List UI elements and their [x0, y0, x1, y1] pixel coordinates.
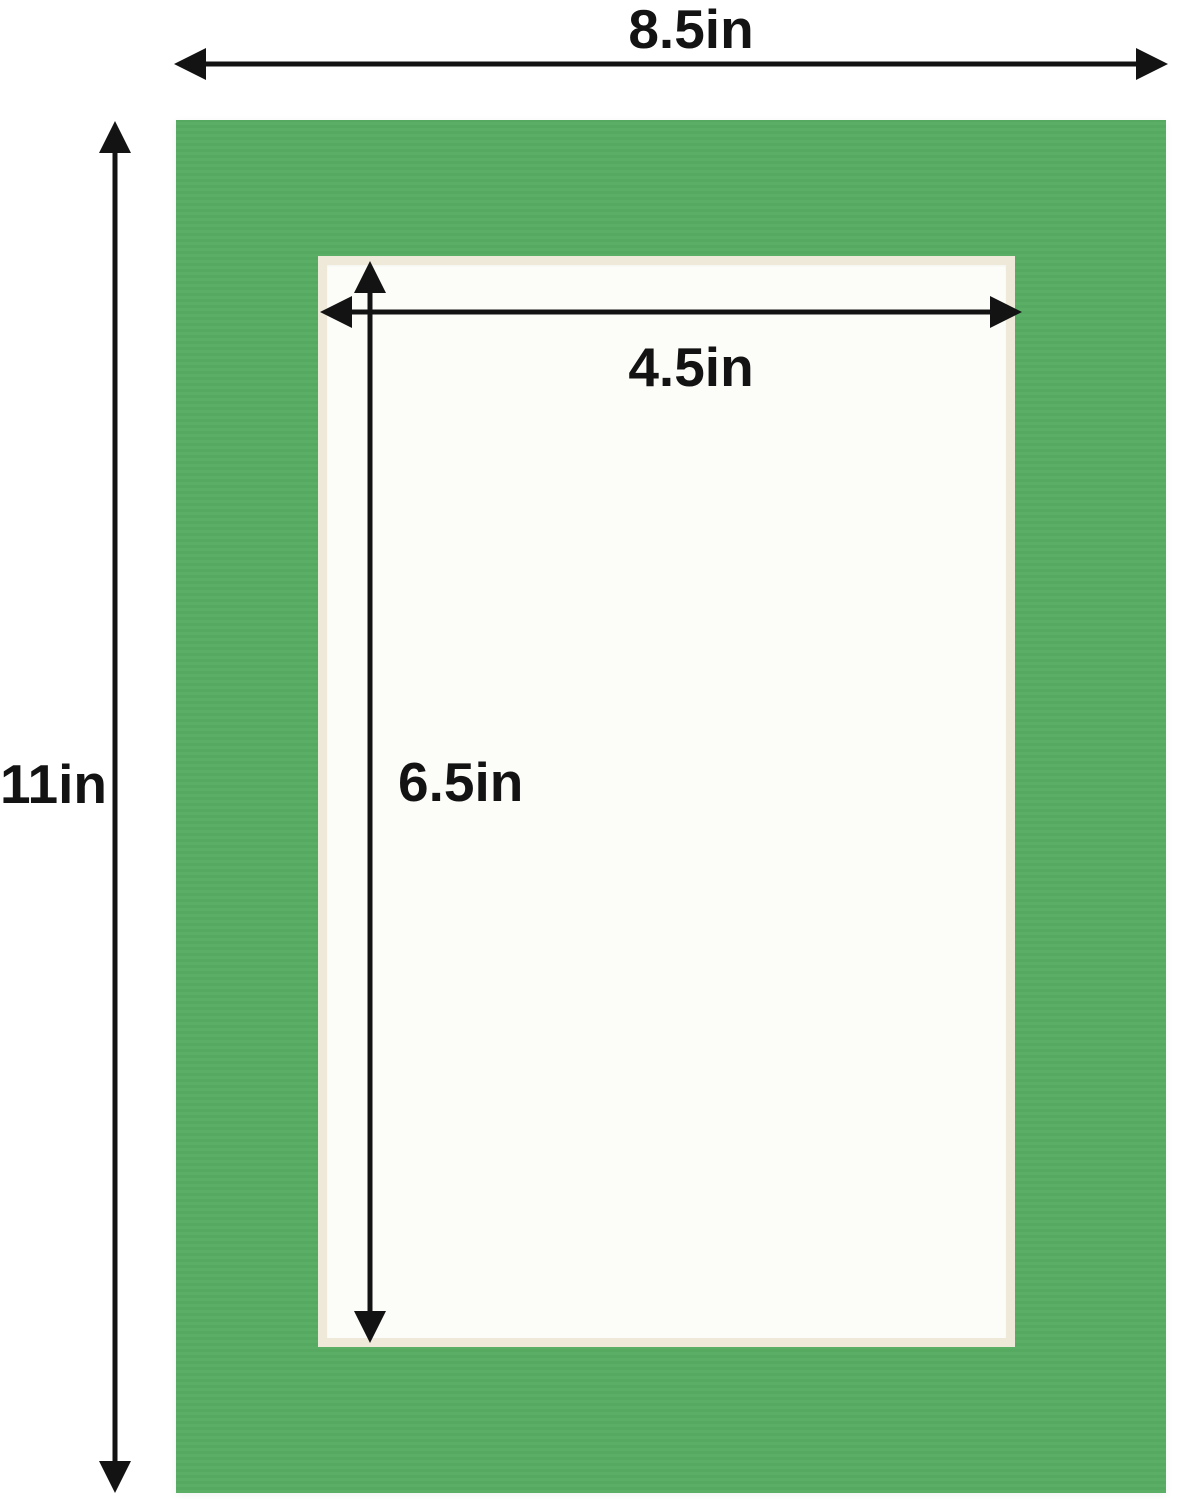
dimension-line	[113, 127, 118, 1487]
opening-width-label: 4.5in	[560, 340, 822, 395]
opening-height-arrow	[353, 261, 387, 1343]
opening-width-arrow	[320, 295, 1022, 329]
outer-width-label: 8.5in	[560, 2, 822, 57]
dimension-line	[180, 62, 1162, 67]
opening-height-label: 6.5in	[398, 755, 523, 810]
arrowhead-right-icon	[1136, 48, 1168, 80]
dimension-line	[326, 310, 1016, 315]
arrowhead-down-icon	[99, 1461, 131, 1493]
dimension-line	[368, 267, 373, 1337]
outer-height-label: 11in	[0, 757, 96, 812]
arrowhead-right-icon	[990, 296, 1022, 328]
arrowhead-down-icon	[354, 1311, 386, 1343]
mat-dimension-diagram: 8.5in 11in 4.5in 6.5in	[0, 0, 1179, 1500]
